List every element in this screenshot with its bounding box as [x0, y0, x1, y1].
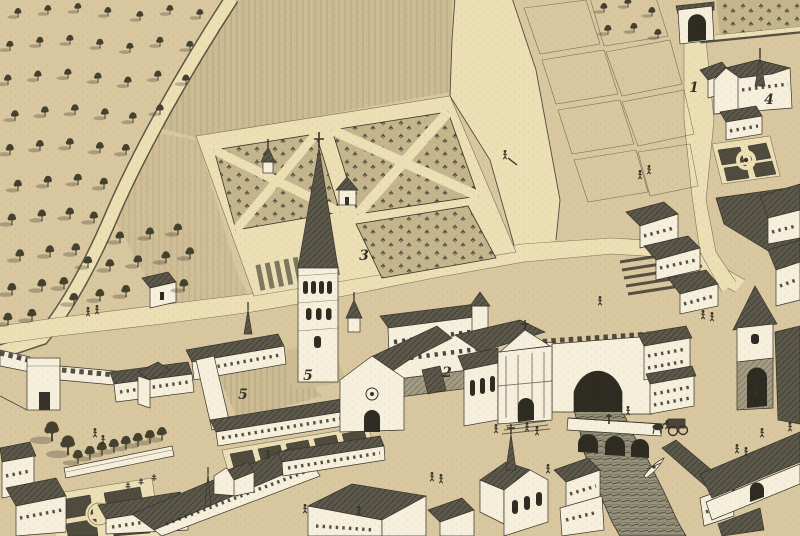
stipple-texture — [0, 0, 800, 536]
map-label-4: 4 — [764, 92, 774, 108]
engraved-map: 1 2 3 4 5 5 — [0, 0, 800, 536]
map-label-1: 1 — [689, 80, 699, 96]
map-label-3: 3 — [359, 248, 369, 264]
map-label-5b: 5 — [303, 368, 313, 384]
map-canvas: 1 2 3 4 5 5 — [0, 0, 800, 536]
map-label-2: 2 — [441, 365, 452, 381]
map-label-5a: 5 — [238, 387, 248, 403]
